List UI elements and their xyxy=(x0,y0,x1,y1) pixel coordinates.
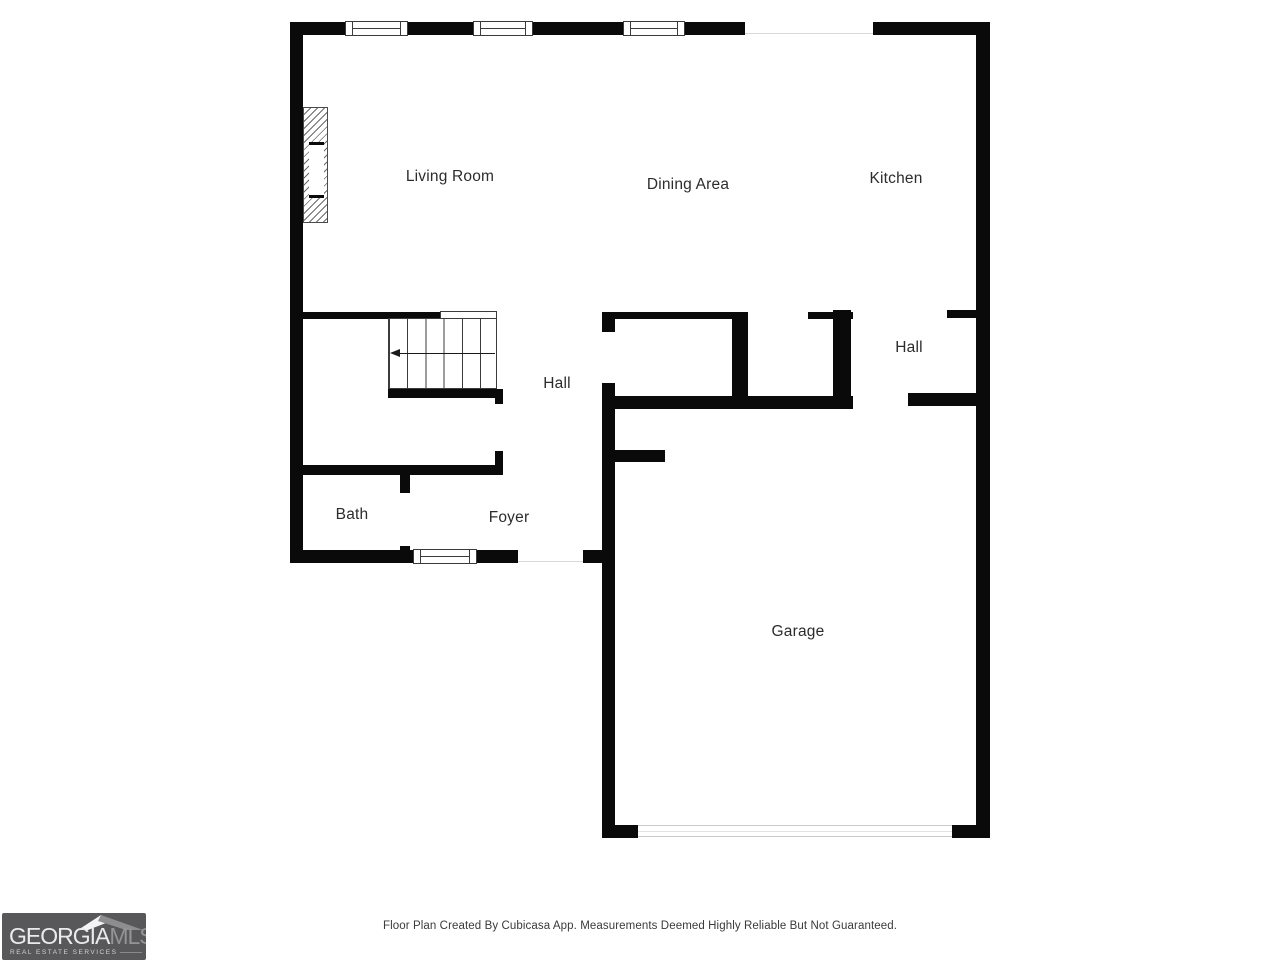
window-symbol xyxy=(473,21,533,36)
window-pane xyxy=(480,22,526,35)
wall-stair-bottom xyxy=(388,389,503,398)
wall-corridor-left-upper xyxy=(602,312,615,332)
staircase xyxy=(388,318,497,389)
room-label-living-room: Living Room xyxy=(406,168,494,186)
wall-corridor-top-a xyxy=(602,312,748,319)
room-label-hall-lower: Hall xyxy=(543,375,571,393)
front-door-opening xyxy=(518,561,583,562)
wall-garage-bottom-right xyxy=(952,825,990,838)
wall-garage-left xyxy=(602,397,615,838)
wall-kitchen-hall xyxy=(947,310,977,318)
wall-exterior-left xyxy=(290,22,303,563)
floor-plan: Living Room Dining Area Kitchen Hall Hal… xyxy=(0,0,1280,960)
window-symbol xyxy=(623,21,685,36)
logo-tagline-row: REAL ESTATE SERVICES xyxy=(10,949,142,956)
fireplace xyxy=(303,107,328,223)
georgia-mls-logo: GEORGIAMLS REAL ESTATE SERVICES xyxy=(2,913,146,960)
stair-direction-arrow-icon xyxy=(393,353,495,354)
garage-door-symbol xyxy=(638,825,952,837)
wall-bath-top xyxy=(296,465,502,475)
window-pane xyxy=(352,22,401,35)
window-symbol xyxy=(345,21,408,36)
logo-tagline: REAL ESTATE SERVICES xyxy=(10,949,117,956)
wall-garage-bottom-left xyxy=(602,825,638,838)
wall-stairroom-right-upper xyxy=(495,389,503,404)
room-label-foyer: Foyer xyxy=(489,509,530,527)
logo-wordmark: GEORGIAMLS xyxy=(9,925,146,948)
room-label-garage: Garage xyxy=(772,623,825,641)
room-label-hall-upper: Hall xyxy=(895,339,923,357)
firebox xyxy=(309,142,324,198)
wall-exterior-right xyxy=(976,22,990,838)
floor-plan-canvas: Living Room Dining Area Kitchen Hall Hal… xyxy=(0,0,1280,960)
room-label-bath: Bath xyxy=(336,506,369,524)
wall-exterior-top-right xyxy=(873,22,990,35)
logo-tagline-rule xyxy=(120,952,142,953)
wall-garage-stub xyxy=(602,450,665,462)
opening-top-wall xyxy=(745,33,873,34)
wall-bath-foyer-divider-lower xyxy=(400,546,410,563)
room-label-dining-area: Dining Area xyxy=(647,176,729,194)
footer-disclaimer: Floor Plan Created By Cubicasa App. Meas… xyxy=(0,920,1280,932)
window-pane xyxy=(420,550,470,563)
wall-bath-foyer-divider-upper xyxy=(400,472,410,493)
window-pane xyxy=(630,22,678,35)
window-symbol xyxy=(413,549,477,564)
wall-corridor-bottom xyxy=(602,396,853,409)
wall-closet-divider xyxy=(732,312,748,397)
logo-text-georgia: GEORGIA xyxy=(9,923,109,949)
wall-hall-left xyxy=(833,310,851,400)
logo-text-mls: MLS xyxy=(109,923,146,949)
room-label-kitchen: Kitchen xyxy=(869,170,922,188)
wall-hall-bottom xyxy=(908,393,983,406)
